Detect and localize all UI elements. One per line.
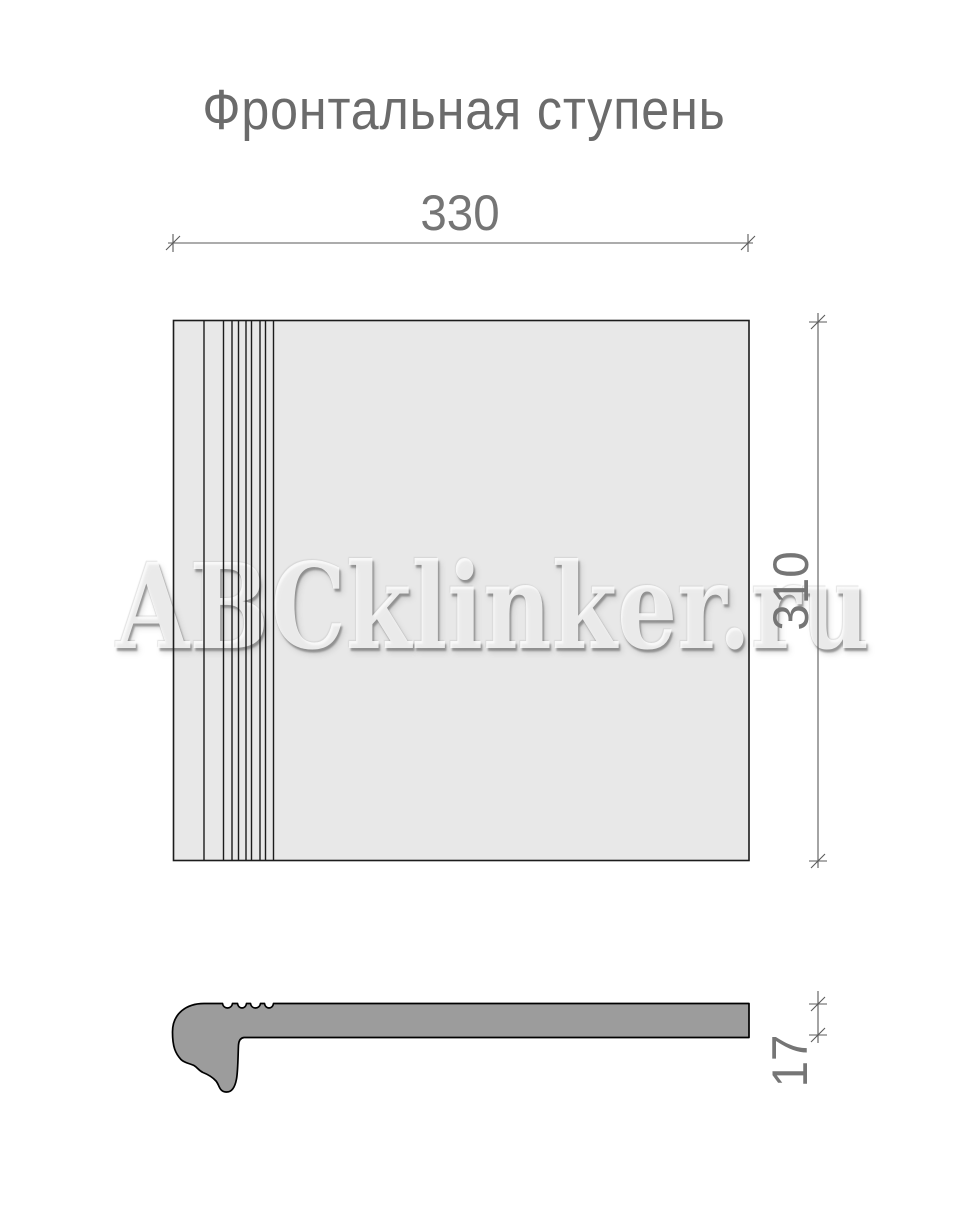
page-title: Фронтальная ступень <box>202 77 725 143</box>
section-profile <box>173 1004 750 1093</box>
dim-thickness-label: 17 <box>765 1035 815 1088</box>
technical-drawing-canvas: Фронтальная ступень ABCklinker.ru <box>0 0 955 1211</box>
dim-depth-label: 310 <box>766 551 816 630</box>
dim-width-label: 330 <box>420 188 499 238</box>
plan-groove-lines <box>204 321 274 860</box>
